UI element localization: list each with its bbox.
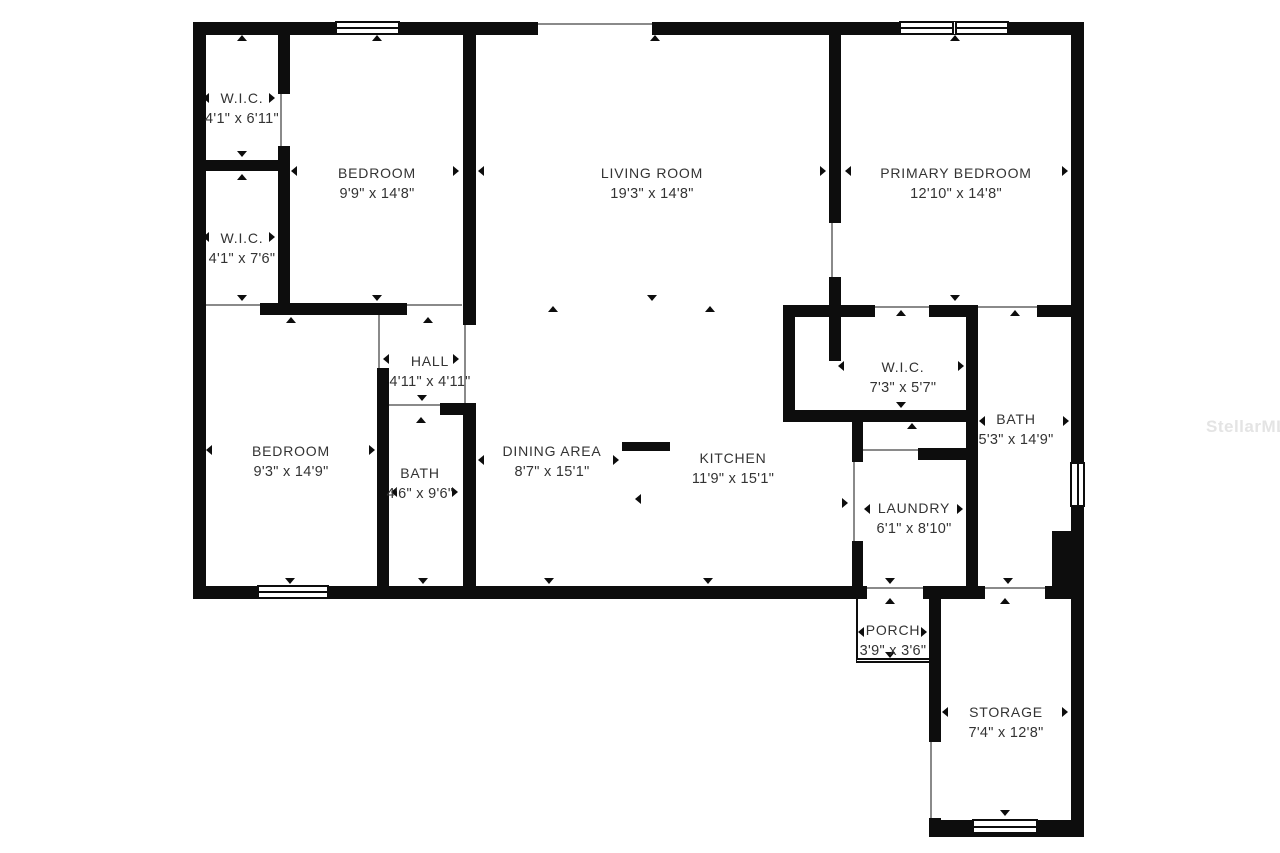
dimension-arrow-down <box>372 295 382 301</box>
dimension-arrow-down <box>647 295 657 301</box>
dimension-arrow-left <box>291 166 297 176</box>
dimension-arrow-up <box>548 306 558 312</box>
room-name: BEDROOM <box>338 163 416 184</box>
dimension-arrow-right <box>453 166 459 176</box>
wall-segment <box>652 22 1084 35</box>
door-opening-line <box>863 449 918 451</box>
dimension-arrow-up <box>907 423 917 429</box>
room-name: LIVING ROOM <box>601 163 703 184</box>
room-name: W.I.C. <box>870 357 937 378</box>
room-name: BATH <box>978 409 1053 430</box>
room-name: PRIMARY BEDROOM <box>880 163 1032 184</box>
dimension-arrow-down <box>703 578 713 584</box>
dimension-arrow-down <box>950 295 960 301</box>
room-dims: 4'1" x 6'11" <box>205 109 279 130</box>
room-dims: 4'6" x 9'6" <box>387 484 454 505</box>
room-dims: 8'7" x 15'1" <box>502 462 601 483</box>
room-dims: 4'1" x 7'6" <box>209 249 276 270</box>
dimension-arrow-left <box>942 707 948 717</box>
room-dims: 12'10" x 14'8" <box>880 184 1032 205</box>
door-opening-line <box>378 315 380 368</box>
door-opening-line <box>985 587 1045 589</box>
room-label-living-room: LIVING ROOM 19'3" x 14'8" <box>601 163 703 205</box>
room-dims: 7'3" x 5'7" <box>870 378 937 399</box>
dimension-arrow-down <box>237 295 247 301</box>
door-opening-line <box>538 23 652 25</box>
dimension-arrow-left <box>838 361 844 371</box>
dimension-arrow-up <box>423 317 433 323</box>
dimension-arrow-right <box>369 445 375 455</box>
door-opening-line <box>978 306 1037 308</box>
dimension-arrow-down <box>885 578 895 584</box>
dimension-arrow-right <box>958 361 964 371</box>
room-dims: 4'11" x 4'11" <box>389 372 470 393</box>
room-label-porch: PORCH 3'9" x 3'6" <box>860 620 927 662</box>
room-label-laundry: LAUNDRY 6'1" x 8'10" <box>876 498 951 540</box>
wall-segment <box>966 315 978 586</box>
dimension-arrow-up <box>896 310 906 316</box>
window-pane-line <box>259 591 327 593</box>
room-label-dining-area: DINING AREA 8'7" x 15'1" <box>502 441 601 483</box>
dimension-arrow-down <box>285 578 295 584</box>
room-label-bath-1: BATH 4'6" x 9'6" <box>387 463 454 505</box>
dimension-arrow-up <box>1010 310 1020 316</box>
dimension-arrow-left <box>864 504 870 514</box>
window-divider <box>952 22 957 34</box>
room-name: LAUNDRY <box>876 498 951 519</box>
room-label-primary-bedroom: PRIMARY BEDROOM 12'10" x 14'8" <box>880 163 1032 205</box>
room-label-bath-primary: BATH 5'3" x 14'9" <box>978 409 1053 451</box>
dimension-arrow-up <box>372 35 382 41</box>
room-label-bedroom-2: BEDROOM 9'9" x 14'8" <box>338 163 416 205</box>
room-dims: 9'9" x 14'8" <box>338 184 416 205</box>
kitchen-island-counter <box>622 442 670 451</box>
window-symbol <box>1070 462 1085 507</box>
window-symbol <box>972 819 1038 834</box>
dimension-arrow-right <box>1063 416 1069 426</box>
dimension-arrow-left <box>206 445 212 455</box>
dimension-arrow-right <box>820 166 826 176</box>
dimension-arrow-left <box>383 354 389 364</box>
dimension-arrow-left <box>478 166 484 176</box>
wall-segment <box>852 422 863 462</box>
wall-segment <box>829 277 841 361</box>
wall-segment <box>278 146 290 315</box>
dimension-arrow-right <box>842 498 848 508</box>
room-label-storage: STORAGE 7'4" x 12'8" <box>968 702 1043 744</box>
room-name: W.I.C. <box>209 228 276 249</box>
window-symbol <box>335 21 400 35</box>
wall-segment <box>1071 22 1084 837</box>
room-name: HALL <box>389 351 470 372</box>
room-name: BATH <box>387 463 454 484</box>
dimension-arrow-up <box>650 35 660 41</box>
room-dims: 11'9" x 15'1" <box>692 469 774 490</box>
room-label-wic-primary: W.I.C. 7'3" x 5'7" <box>870 357 937 399</box>
room-name: DINING AREA <box>502 441 601 462</box>
dimension-arrow-right <box>957 504 963 514</box>
door-opening-line <box>280 94 282 146</box>
wall-segment <box>463 22 476 325</box>
room-label-kitchen: KITCHEN 11'9" x 15'1" <box>692 448 774 490</box>
room-label-wic-1: W.I.C. 4'1" x 6'11" <box>205 88 279 130</box>
room-label-hall: HALL 4'11" x 4'11" <box>389 351 470 393</box>
window-pane-line <box>337 27 398 29</box>
dimension-arrow-down <box>237 151 247 157</box>
wall-segment <box>463 403 476 599</box>
dimension-arrow-up <box>705 306 715 312</box>
room-name: PORCH <box>860 620 927 641</box>
door-opening-line <box>867 587 923 589</box>
window-symbol <box>257 585 329 599</box>
room-dims: 6'1" x 8'10" <box>876 519 951 540</box>
window-pane-line <box>974 826 1036 828</box>
dimension-arrow-left <box>478 455 484 465</box>
door-opening-line <box>853 462 855 541</box>
dimension-arrow-up <box>950 35 960 41</box>
dimension-arrow-down <box>1003 578 1013 584</box>
room-label-wic-2: W.I.C. 4'1" x 7'6" <box>209 228 276 270</box>
wall-segment <box>193 160 290 171</box>
room-label-bedroom-3: BEDROOM 9'3" x 14'9" <box>252 441 330 483</box>
dimension-arrow-left <box>845 166 851 176</box>
door-opening-line <box>930 742 932 818</box>
door-opening-line <box>831 223 833 277</box>
wall-segment <box>918 448 966 460</box>
wall-segment <box>1037 305 1084 317</box>
room-name: STORAGE <box>968 702 1043 723</box>
wall-segment <box>278 22 290 94</box>
window-pane-line <box>1077 464 1079 505</box>
room-dims: 7'4" x 12'8" <box>968 723 1043 744</box>
room-name: KITCHEN <box>692 448 774 469</box>
room-dims: 5'3" x 14'9" <box>978 430 1053 451</box>
floor-plan: W.I.C. 4'1" x 6'11" W.I.C. 4'1" x 7'6" B… <box>0 0 1280 853</box>
wall-segment <box>783 305 795 422</box>
dimension-arrow-down <box>1000 810 1010 816</box>
wall-segment <box>1052 531 1084 599</box>
wall-segment <box>829 22 841 223</box>
dimension-arrow-up <box>286 317 296 323</box>
room-dims: 19'3" x 14'8" <box>601 184 703 205</box>
room-dims: 9'3" x 14'9" <box>252 462 330 483</box>
door-opening-line <box>407 304 462 306</box>
dimension-arrow-up <box>1000 598 1010 604</box>
door-opening-line <box>389 404 440 406</box>
dimension-arrow-up <box>237 174 247 180</box>
dimension-arrow-up <box>416 417 426 423</box>
wall-segment <box>440 403 463 415</box>
dimension-arrow-right <box>1062 707 1068 717</box>
window-symbol <box>899 21 1009 35</box>
wall-segment <box>260 303 407 315</box>
dimension-arrow-down <box>417 395 427 401</box>
dimension-arrow-right <box>613 455 619 465</box>
dimension-arrow-down <box>896 402 906 408</box>
dimension-arrow-left <box>635 494 641 504</box>
watermark: StellarMLS <box>1206 417 1280 437</box>
wall-segment <box>852 541 863 586</box>
door-opening-line <box>206 304 260 306</box>
dimension-arrow-right <box>1062 166 1068 176</box>
door-opening-line <box>875 306 929 308</box>
room-name: BEDROOM <box>252 441 330 462</box>
dimension-arrow-down <box>418 578 428 584</box>
wall-segment <box>783 410 978 422</box>
room-name: W.I.C. <box>205 88 279 109</box>
dimension-arrow-up <box>237 35 247 41</box>
dimension-arrow-down <box>544 578 554 584</box>
room-dims: 3'9" x 3'6" <box>860 641 927 662</box>
